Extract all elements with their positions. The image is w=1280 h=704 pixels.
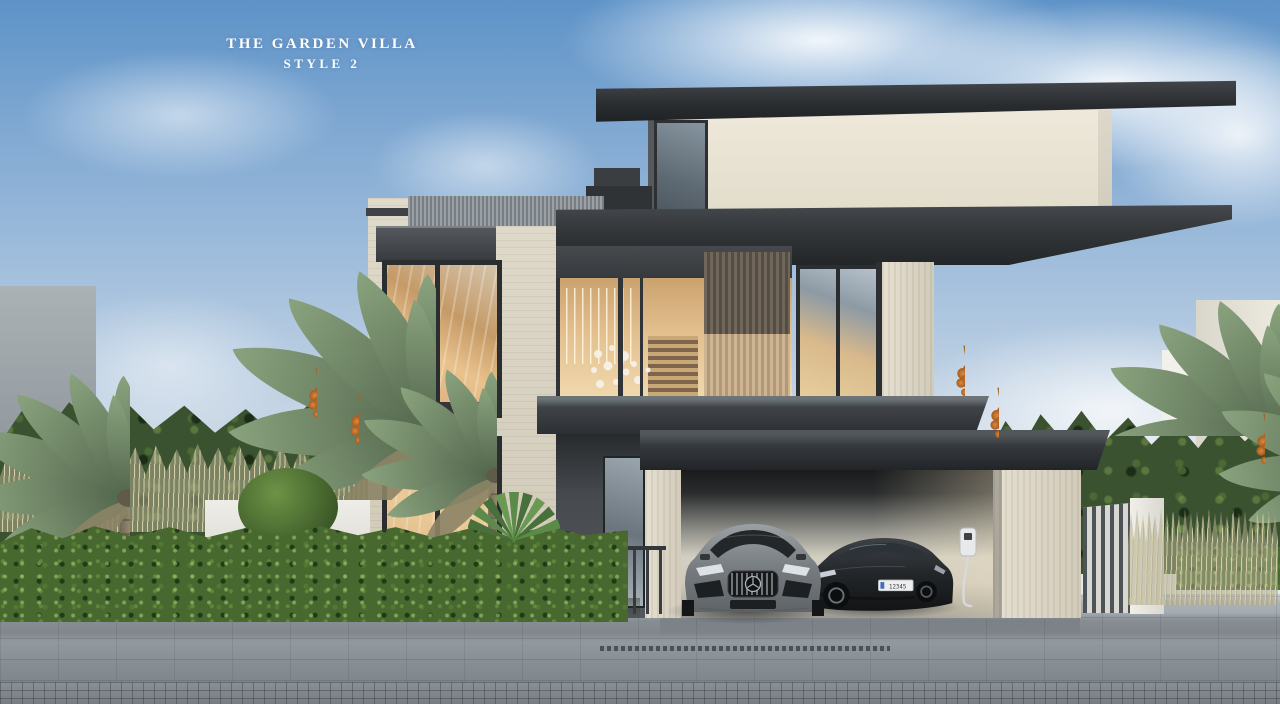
mercedes-car [678, 508, 828, 618]
project-subtitle: STYLE 2 [210, 56, 434, 72]
date-cluster [1231, 408, 1265, 464]
fan-palm [468, 492, 560, 546]
date-cluster [283, 362, 317, 418]
wood-slat-panel-light [704, 334, 790, 398]
date-cluster [965, 382, 999, 438]
pillar-shadow-edge [993, 456, 1002, 618]
glass-mullion [618, 278, 623, 398]
right-wing-window [796, 265, 888, 405]
date-cluster [931, 340, 965, 396]
ev-charger [952, 524, 998, 610]
side-gate-slats [1083, 503, 1130, 613]
ev-charger-screen [964, 533, 972, 540]
project-title: THE GARDEN VILLA [210, 36, 434, 53]
mercedes-mirror-right [796, 554, 806, 560]
cobble-strip [0, 682, 1280, 704]
date-cluster [325, 388, 359, 444]
villa-render-scene: 12345 [0, 0, 1280, 704]
mercedes-intake-centre [730, 600, 776, 609]
project-title-block: THE GARDEN VILLA STYLE 2 [210, 36, 434, 72]
parapet-block-upper [594, 168, 640, 188]
ev-charger-cable [963, 556, 972, 606]
glass-frame [556, 278, 560, 398]
wood-slat-panel-dark [704, 252, 790, 334]
carport-roof-slab [640, 430, 1110, 470]
license-plate-text: 12345 [889, 584, 906, 590]
third-floor-window [654, 120, 708, 220]
mercedes-wheel-right [812, 600, 824, 616]
window-mullion [836, 269, 840, 401]
ev-charger-unit [960, 528, 976, 556]
mercedes-mirror-left [700, 554, 710, 560]
license-plate-chip [880, 582, 884, 589]
tesla-rear-wheel [916, 581, 937, 602]
glass-mullion [640, 278, 643, 398]
drain-grate [600, 646, 890, 651]
mercedes-wheel-left [682, 600, 694, 616]
palm-tree-far-left [0, 160, 130, 590]
